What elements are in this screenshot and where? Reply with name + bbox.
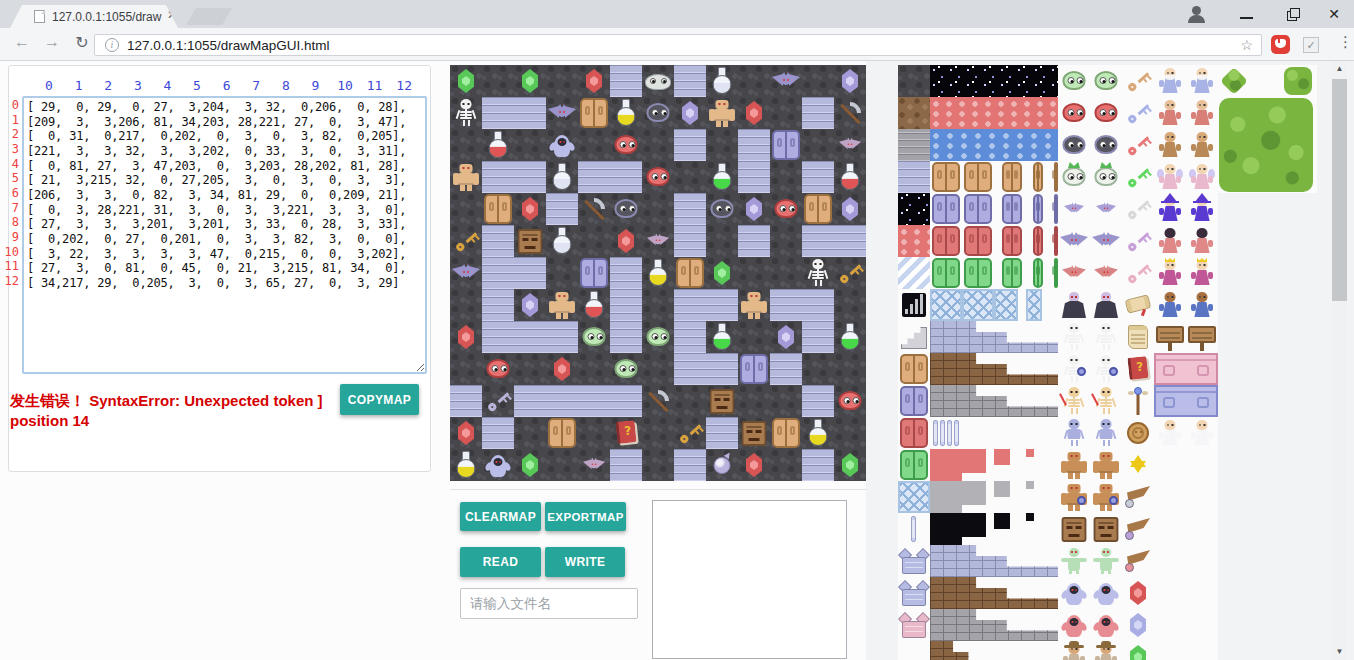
map-tile-brick-wall[interactable] bbox=[674, 449, 706, 481]
map-tile-brick-wall[interactable] bbox=[482, 417, 514, 449]
tileset-skel[interactable] bbox=[1058, 417, 1090, 449]
map-tile-red-slime[interactable] bbox=[610, 129, 642, 161]
tileset-scrollk[interactable] bbox=[1122, 289, 1154, 321]
map-tile-ghost[interactable] bbox=[546, 129, 578, 161]
map-tile-red-gem[interactable] bbox=[738, 449, 770, 481]
map-tile-dark-slime[interactable] bbox=[706, 193, 738, 225]
tileset-sq[interactable] bbox=[962, 449, 986, 473]
map-tile-brick-wall[interactable] bbox=[738, 129, 770, 161]
map-tile-purple-gem[interactable] bbox=[770, 321, 802, 353]
map-tile-wooden-door[interactable] bbox=[482, 193, 514, 225]
map-tile-purple-bat[interactable] bbox=[450, 257, 482, 289]
map-tile-dark-rock-floor[interactable] bbox=[738, 385, 770, 417]
map-tile-brick-wall[interactable] bbox=[738, 161, 770, 193]
tileset-door[interactable] bbox=[962, 161, 994, 193]
tileset-battile[interactable] bbox=[898, 577, 930, 609]
tileset-sq[interactable] bbox=[994, 513, 1010, 529]
map-tile-dark-rock-floor[interactable] bbox=[546, 65, 578, 97]
tileset-person[interactable] bbox=[1186, 289, 1218, 321]
map-tile-brick-wall[interactable] bbox=[802, 321, 834, 353]
tileset-blob[interactable] bbox=[1090, 97, 1122, 129]
map-tile-brick-wall[interactable] bbox=[802, 385, 834, 417]
map-tile-green-gem[interactable] bbox=[706, 257, 738, 289]
map-tile-stone-face[interactable] bbox=[514, 225, 546, 257]
map-canvas[interactable]: ? bbox=[450, 65, 866, 481]
tileset-bat[interactable] bbox=[1058, 257, 1090, 289]
map-tile-dark-rock-floor[interactable] bbox=[770, 161, 802, 193]
map-tile-brick-wall[interactable] bbox=[610, 449, 642, 481]
map-tile-red-potion[interactable] bbox=[482, 129, 514, 161]
tileset-gem[interactable] bbox=[1122, 641, 1154, 660]
map-tile-red-bat[interactable] bbox=[578, 449, 610, 481]
map-tile-purple-gem[interactable] bbox=[834, 193, 866, 225]
tileset-golem[interactable] bbox=[1058, 481, 1090, 513]
close-button[interactable]: ✕ bbox=[1314, 0, 1354, 28]
tileset-person[interactable] bbox=[1154, 65, 1186, 97]
map-tile-brick-wall[interactable] bbox=[482, 289, 514, 321]
map-tile-golem[interactable] bbox=[706, 97, 738, 129]
map-tile-brick-wall[interactable] bbox=[802, 225, 834, 257]
map-tile-red-slime[interactable] bbox=[482, 353, 514, 385]
tileset-book[interactable]: ? bbox=[1122, 353, 1154, 385]
map-tile-brick-wall[interactable] bbox=[482, 321, 514, 353]
tileset-bsteps[interactable] bbox=[930, 353, 1058, 385]
tileset-person[interactable] bbox=[1186, 417, 1218, 449]
tileset-person[interactable] bbox=[1186, 225, 1218, 257]
map-tile-brick-wall[interactable] bbox=[578, 161, 610, 193]
map-tile-silver-potion[interactable] bbox=[546, 225, 578, 257]
tileset-ghostk[interactable] bbox=[1058, 609, 1090, 641]
map-tile-brick-wall[interactable] bbox=[610, 65, 642, 97]
map-tile-red-gem[interactable] bbox=[450, 321, 482, 353]
map-tile-silver-key[interactable] bbox=[482, 385, 514, 417]
new-tab-button[interactable] bbox=[186, 8, 232, 25]
map-tile-dark-rock-floor[interactable] bbox=[450, 353, 482, 385]
tileset-person[interactable] bbox=[1090, 641, 1122, 660]
map-tile-purple-gem[interactable] bbox=[738, 193, 770, 225]
tileset-door[interactable] bbox=[930, 161, 962, 193]
map-tile-dark-rock-floor[interactable] bbox=[834, 353, 866, 385]
map-tile-brick-wall[interactable] bbox=[706, 417, 738, 449]
map-tile-dark-rock-floor[interactable] bbox=[546, 449, 578, 481]
tileset-sq[interactable] bbox=[930, 449, 962, 481]
map-tile-yellow-potion[interactable] bbox=[802, 417, 834, 449]
minimize-button[interactable] bbox=[1240, 17, 1253, 19]
tileset-latt[interactable] bbox=[930, 289, 962, 321]
map-tile-brick-wall[interactable] bbox=[738, 225, 770, 257]
tileset-wing[interactable] bbox=[1122, 513, 1154, 545]
tileset-vamp[interactable] bbox=[1090, 289, 1122, 321]
tileset-bsteps[interactable] bbox=[930, 321, 1058, 353]
map-tile-green-potion[interactable] bbox=[706, 321, 738, 353]
map-tile-dark-rock-floor[interactable] bbox=[642, 129, 674, 161]
tileset-key[interactable] bbox=[1122, 97, 1154, 129]
tileset-battile[interactable] bbox=[898, 609, 930, 641]
info-icon[interactable]: i bbox=[105, 38, 119, 52]
tileset-tex[interactable] bbox=[898, 129, 930, 161]
tileset-bushd[interactable] bbox=[1218, 65, 1250, 97]
tileset-blob[interactable] bbox=[1058, 129, 1090, 161]
tileset-key[interactable] bbox=[1122, 193, 1154, 225]
tileset-bat[interactable] bbox=[1090, 257, 1122, 289]
map-tile-green-potion[interactable] bbox=[834, 321, 866, 353]
map-tile-pickaxe[interactable] bbox=[642, 385, 674, 417]
tileset-blob[interactable] bbox=[1058, 97, 1090, 129]
map-tile-dark-rock-floor[interactable] bbox=[642, 289, 674, 321]
browser-tab[interactable]: 127.0.0.1:1055/drawMa ✕ bbox=[10, 5, 178, 28]
tileset-skel[interactable] bbox=[1090, 353, 1122, 385]
map-tile-dark-rock-floor[interactable] bbox=[738, 257, 770, 289]
tileset-person[interactable] bbox=[1186, 161, 1218, 193]
tileset-sign[interactable] bbox=[1186, 321, 1218, 353]
map-tile-brick-wall[interactable] bbox=[514, 385, 546, 417]
map-tile-brick-wall[interactable] bbox=[834, 225, 866, 257]
tileset-battile[interactable] bbox=[898, 545, 930, 577]
map-tile-green-potion[interactable] bbox=[706, 161, 738, 193]
page-scrollbar[interactable]: ▲ ▼ bbox=[1332, 61, 1347, 660]
tileset-crownblob[interactable] bbox=[1090, 161, 1122, 193]
tileset-key[interactable] bbox=[1122, 65, 1154, 97]
filename-input[interactable] bbox=[460, 588, 638, 619]
read-button[interactable]: READ bbox=[460, 547, 541, 577]
tileset-door[interactable] bbox=[962, 193, 994, 225]
tileset-bsteps[interactable] bbox=[930, 545, 1058, 577]
map-tile-dark-rock-floor[interactable] bbox=[834, 417, 866, 449]
map-tile-green-slime[interactable] bbox=[642, 321, 674, 353]
map-tile-brick-wall[interactable] bbox=[674, 193, 706, 225]
tileset-facek[interactable] bbox=[1058, 513, 1090, 545]
tileset-door[interactable] bbox=[1031, 193, 1045, 225]
map-tile-red-potion[interactable] bbox=[834, 161, 866, 193]
map-tile-brick-wall[interactable] bbox=[482, 225, 514, 257]
tileset-golem[interactable] bbox=[1058, 449, 1090, 481]
map-tile-brick-wall[interactable] bbox=[578, 385, 610, 417]
tileset-latt[interactable] bbox=[994, 289, 1018, 321]
map-tile-wooden-door[interactable] bbox=[770, 417, 802, 449]
tileset-key[interactable] bbox=[1122, 129, 1154, 161]
tileset-bsteps[interactable] bbox=[930, 609, 1058, 641]
map-tile-dark-rock-floor[interactable] bbox=[514, 417, 546, 449]
tileset-ghostk[interactable] bbox=[1090, 609, 1122, 641]
tileset-door[interactable] bbox=[898, 385, 930, 417]
map-tile-green-gem[interactable] bbox=[834, 449, 866, 481]
tileset-golem[interactable] bbox=[1090, 449, 1122, 481]
tileset-door[interactable] bbox=[1031, 257, 1045, 289]
map-tile-brick-wall[interactable] bbox=[514, 321, 546, 353]
tileset-stairsicon[interactable] bbox=[898, 289, 930, 321]
scroll-down-icon[interactable]: ▼ bbox=[1332, 644, 1347, 660]
tileset-person[interactable] bbox=[1154, 289, 1186, 321]
map-tile-dark-rock-floor[interactable] bbox=[674, 385, 706, 417]
map-tile-wooden-door[interactable] bbox=[802, 193, 834, 225]
tileset-person[interactable] bbox=[1058, 641, 1090, 660]
map-tile-dark-rock-floor[interactable] bbox=[642, 353, 674, 385]
tileset-tex[interactable] bbox=[898, 161, 930, 193]
map-tile-brick-wall[interactable] bbox=[802, 161, 834, 193]
tileset-facek[interactable] bbox=[1090, 513, 1122, 545]
map-tile-yellow-potion[interactable] bbox=[450, 449, 482, 481]
bookmark-star-icon[interactable]: ☆ bbox=[1240, 37, 1253, 53]
tileset-door[interactable] bbox=[898, 449, 930, 481]
map-tile-dark-rock-floor[interactable] bbox=[706, 225, 738, 257]
map-tile-red-gem[interactable] bbox=[578, 65, 610, 97]
tileset-sq[interactable] bbox=[994, 481, 1010, 497]
map-tile-brick-wall[interactable] bbox=[674, 129, 706, 161]
tileset-tex[interactable] bbox=[898, 97, 930, 129]
map-tile-golem[interactable] bbox=[450, 161, 482, 193]
tileset-ghostk[interactable] bbox=[1058, 577, 1090, 609]
map-tile-red-gem[interactable] bbox=[450, 417, 482, 449]
map-tile-dark-rock-floor[interactable] bbox=[642, 417, 674, 449]
map-tile-dark-rock-floor[interactable] bbox=[578, 353, 610, 385]
tileset-person[interactable] bbox=[1154, 161, 1186, 193]
tileset-golem[interactable] bbox=[1090, 481, 1122, 513]
tileset-blob[interactable] bbox=[1058, 65, 1090, 97]
map-tile-dark-rock-floor[interactable] bbox=[642, 193, 674, 225]
tileset-skel[interactable] bbox=[1090, 321, 1122, 353]
map-tile-skeleton[interactable] bbox=[450, 97, 482, 129]
tab-close-icon[interactable]: ✕ bbox=[167, 8, 177, 22]
map-tile-dark-rock-floor[interactable] bbox=[834, 289, 866, 321]
tileset-door[interactable] bbox=[962, 257, 994, 289]
tileset-bat[interactable] bbox=[1090, 225, 1122, 257]
map-tile-dark-rock-floor[interactable] bbox=[770, 385, 802, 417]
map-tile-dark-rock-floor[interactable] bbox=[578, 417, 610, 449]
map-tile-skeleton[interactable] bbox=[802, 257, 834, 289]
map-tile-purple-door[interactable] bbox=[578, 257, 610, 289]
clearmap-button[interactable]: CLEARMAP bbox=[460, 502, 541, 531]
tileset-latt[interactable] bbox=[1026, 289, 1042, 321]
check-extension-icon[interactable]: ✓ bbox=[1303, 37, 1319, 53]
tileset-wall[interactable] bbox=[1154, 385, 1218, 417]
map-tile-dark-rock-floor[interactable] bbox=[546, 257, 578, 289]
map-tile-red-potion[interactable] bbox=[578, 289, 610, 321]
tileset-skel[interactable] bbox=[1090, 417, 1122, 449]
map-tile-brick-wall[interactable] bbox=[674, 321, 706, 353]
map-tile-wooden-door[interactable] bbox=[546, 417, 578, 449]
tileset-wing[interactable] bbox=[1122, 545, 1154, 577]
map-tile-dark-rock-floor[interactable] bbox=[578, 225, 610, 257]
map-tile-red-slime[interactable] bbox=[642, 161, 674, 193]
map-tile-red-slime[interactable] bbox=[834, 385, 866, 417]
tileset-person[interactable] bbox=[1154, 193, 1186, 225]
tileset-tex[interactable] bbox=[930, 129, 1058, 161]
map-tile-red-gem[interactable] bbox=[610, 225, 642, 257]
tileset-person[interactable] bbox=[1186, 257, 1218, 289]
map-tile-dark-rock-floor[interactable] bbox=[770, 225, 802, 257]
scroll-up-icon[interactable]: ▲ bbox=[1332, 61, 1347, 77]
map-tile-pickaxe[interactable] bbox=[578, 193, 610, 225]
map-tile-brick-wall[interactable] bbox=[802, 97, 834, 129]
map-tile-brick-wall[interactable] bbox=[706, 289, 738, 321]
tileset-tex[interactable] bbox=[898, 193, 930, 225]
map-tile-red-gem[interactable] bbox=[546, 353, 578, 385]
tileset-staff[interactable] bbox=[1122, 385, 1154, 417]
map-tile-spell-book[interactable]: ? bbox=[610, 417, 642, 449]
tileset-tex[interactable] bbox=[930, 97, 1058, 129]
tileset-stairs[interactable] bbox=[898, 321, 930, 353]
map-tile-red-bat[interactable] bbox=[642, 225, 674, 257]
map-tile-white-slime[interactable] bbox=[642, 65, 674, 97]
map-tile-dark-slime[interactable] bbox=[610, 193, 642, 225]
tileset-gem[interactable] bbox=[1122, 609, 1154, 641]
tileset-key[interactable] bbox=[1122, 257, 1154, 289]
map-tile-brick-wall[interactable] bbox=[450, 385, 482, 417]
map-tile-purple-gem[interactable] bbox=[674, 97, 706, 129]
tileset-bsteps[interactable] bbox=[930, 577, 1058, 609]
map-tile-brick-wall[interactable] bbox=[514, 257, 546, 289]
tileset-latt[interactable] bbox=[962, 289, 994, 321]
map-tile-wooden-door[interactable] bbox=[674, 257, 706, 289]
map-tile-dark-rock-floor[interactable] bbox=[738, 321, 770, 353]
tileset-door[interactable] bbox=[930, 257, 962, 289]
url-bar[interactable]: i 127.0.0.1:1055/drawMapGUI.html ☆ bbox=[94, 34, 1262, 56]
map-tile-dark-rock-floor[interactable] bbox=[450, 289, 482, 321]
tileset-sq[interactable] bbox=[962, 481, 986, 505]
map-tile-yellow-potion[interactable] bbox=[610, 97, 642, 129]
tileset-sign[interactable] bbox=[1154, 321, 1186, 353]
tileset-star[interactable] bbox=[1122, 449, 1154, 481]
tileset-sq[interactable] bbox=[930, 513, 962, 545]
map-tile-purple-gem[interactable] bbox=[834, 65, 866, 97]
tileset-skel[interactable] bbox=[1058, 353, 1090, 385]
tileset-person[interactable] bbox=[1186, 129, 1218, 161]
map-tile-green-gem[interactable] bbox=[450, 65, 482, 97]
map-tile-gold-key[interactable] bbox=[834, 257, 866, 289]
map-tile-green-gem[interactable] bbox=[514, 449, 546, 481]
tileset-tex[interactable] bbox=[898, 65, 930, 97]
map-tile-brick-wall[interactable] bbox=[674, 353, 706, 385]
tileset-vamp[interactable] bbox=[1058, 289, 1090, 321]
hand-extension-icon[interactable] bbox=[1271, 35, 1290, 54]
map-tile-dark-rock-floor[interactable] bbox=[802, 129, 834, 161]
map-tile-dark-rock-floor[interactable] bbox=[578, 129, 610, 161]
tileset-pillars[interactable] bbox=[930, 417, 1026, 449]
tileset-tex[interactable] bbox=[898, 225, 930, 257]
map-tile-purple-bat[interactable] bbox=[770, 65, 802, 97]
map-tile-brick-wall[interactable] bbox=[674, 289, 706, 321]
map-tile-dark-rock-floor[interactable] bbox=[642, 449, 674, 481]
tileset-person[interactable] bbox=[1154, 257, 1186, 289]
write-button[interactable]: WRITE bbox=[545, 547, 625, 577]
map-tile-dark-rock-floor[interactable] bbox=[482, 65, 514, 97]
tileset-parch[interactable] bbox=[1122, 321, 1154, 353]
tileset-bush[interactable] bbox=[1282, 65, 1314, 97]
tileset-wing[interactable] bbox=[1122, 481, 1154, 513]
tileset-door[interactable] bbox=[1031, 161, 1045, 193]
map-tile-purple-gem[interactable] bbox=[514, 289, 546, 321]
tileset-door[interactable] bbox=[1031, 225, 1045, 257]
map-tile-dark-rock-floor[interactable] bbox=[738, 65, 770, 97]
tileset-key[interactable] bbox=[1122, 161, 1154, 193]
map-tile-dark-rock-floor[interactable] bbox=[770, 449, 802, 481]
tileset-gem[interactable] bbox=[1122, 577, 1154, 609]
map-tile-brick-wall[interactable] bbox=[482, 257, 514, 289]
map-tile-brick-wall[interactable] bbox=[802, 449, 834, 481]
tileset-medal[interactable] bbox=[1122, 417, 1154, 449]
tileset-key[interactable] bbox=[1122, 225, 1154, 257]
map-tile-red-bat[interactable] bbox=[834, 129, 866, 161]
tileset-tex[interactable] bbox=[898, 257, 930, 289]
map-tile-dark-rock-floor[interactable] bbox=[450, 193, 482, 225]
map-tile-dark-rock-floor[interactable] bbox=[674, 161, 706, 193]
tileset-bat[interactable] bbox=[1090, 193, 1122, 225]
map-tile-brick-wall[interactable] bbox=[610, 385, 642, 417]
tileset-tree[interactable] bbox=[1218, 97, 1314, 193]
tileset-sq[interactable] bbox=[1026, 513, 1034, 521]
matrix-textarea[interactable] bbox=[22, 96, 427, 374]
map-tile-gold-key[interactable] bbox=[450, 225, 482, 257]
map-tile-stone-face[interactable] bbox=[706, 385, 738, 417]
map-tile-ghost[interactable] bbox=[482, 449, 514, 481]
map-tile-purple-orb[interactable] bbox=[706, 449, 738, 481]
scrollbar-thumb[interactable] bbox=[1332, 79, 1347, 301]
tileset-pillars[interactable] bbox=[898, 513, 930, 545]
tileset-sq[interactable] bbox=[962, 513, 986, 537]
tileset-person[interactable] bbox=[1186, 193, 1218, 225]
map-tile-dark-rock-floor[interactable] bbox=[770, 97, 802, 129]
map-tile-golem[interactable] bbox=[738, 289, 770, 321]
map-tile-green-slime[interactable] bbox=[578, 321, 610, 353]
map-tile-brick-wall[interactable] bbox=[610, 289, 642, 321]
map-tile-dark-rock-floor[interactable] bbox=[802, 65, 834, 97]
map-tile-gold-key[interactable] bbox=[674, 417, 706, 449]
tileset-door[interactable] bbox=[898, 417, 930, 449]
map-tile-dark-rock-floor[interactable] bbox=[706, 129, 738, 161]
map-tile-brick-wall[interactable] bbox=[546, 321, 578, 353]
refresh-icon[interactable]: ↻ bbox=[70, 33, 94, 52]
map-tile-stone-face[interactable] bbox=[738, 417, 770, 449]
tileset-door[interactable] bbox=[930, 225, 962, 257]
tileset-person[interactable] bbox=[1154, 417, 1186, 449]
tileset-latt[interactable] bbox=[898, 481, 930, 513]
map-tile-purple-bat[interactable] bbox=[546, 97, 578, 129]
tileset-door[interactable] bbox=[930, 193, 962, 225]
map-tile-brick-wall[interactable] bbox=[706, 353, 738, 385]
tileset-mummy[interactable] bbox=[1058, 545, 1090, 577]
tileset-skel[interactable] bbox=[1058, 321, 1090, 353]
map-tile-brick-wall[interactable] bbox=[610, 161, 642, 193]
map-tile-brick-wall[interactable] bbox=[674, 225, 706, 257]
tileset-door[interactable] bbox=[898, 353, 930, 385]
tileset-door[interactable] bbox=[962, 225, 994, 257]
map-tile-pickaxe[interactable] bbox=[834, 97, 866, 129]
map-tile-wooden-door[interactable] bbox=[578, 97, 610, 129]
map-tile-dark-rock-floor[interactable] bbox=[514, 353, 546, 385]
map-tile-golem[interactable] bbox=[546, 289, 578, 321]
tileset-bsteps[interactable] bbox=[930, 641, 994, 660]
tileset-door[interactable] bbox=[1000, 193, 1024, 225]
tileset-door[interactable] bbox=[1000, 225, 1024, 257]
copymap-button[interactable]: COPYMAP bbox=[340, 384, 419, 415]
map-tile-dark-slime[interactable] bbox=[642, 97, 674, 129]
tileset-tex[interactable] bbox=[930, 65, 1058, 97]
tileset-person[interactable] bbox=[1186, 65, 1218, 97]
map-tile-brick-wall[interactable] bbox=[482, 97, 514, 129]
tileset-crownblob[interactable] bbox=[1058, 161, 1090, 193]
tileset-person[interactable] bbox=[1154, 97, 1186, 129]
map-tile-dark-rock-floor[interactable] bbox=[514, 129, 546, 161]
tileset-door[interactable] bbox=[1000, 257, 1024, 289]
exportmap-button[interactable]: EXPORTMAP bbox=[545, 502, 626, 531]
map-tile-red-gem[interactable] bbox=[738, 97, 770, 129]
map-tile-yellow-potion[interactable] bbox=[642, 257, 674, 289]
menu-dots-icon[interactable]: ⋮ bbox=[1338, 33, 1353, 51]
forward-icon[interactable]: → bbox=[40, 33, 64, 51]
map-tile-brick-wall[interactable] bbox=[610, 257, 642, 289]
map-tile-green-gem[interactable] bbox=[514, 65, 546, 97]
output-box[interactable] bbox=[652, 500, 847, 659]
